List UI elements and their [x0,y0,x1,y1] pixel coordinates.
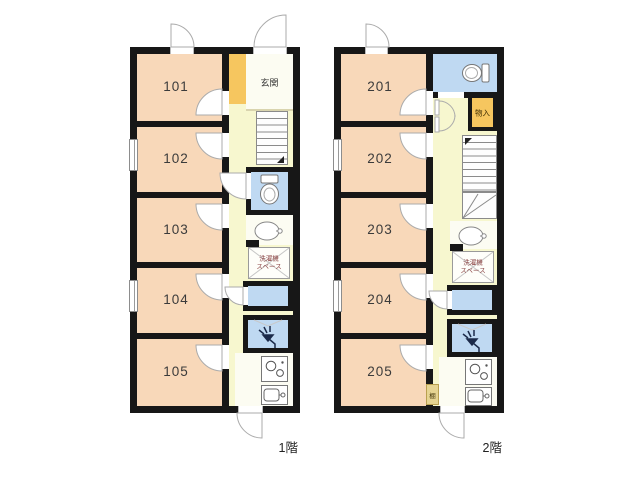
room-202-label: 202 [341,151,419,166]
stair-landing [462,192,497,219]
door-threshold [365,47,388,54]
stove-icon [465,359,492,385]
wall [334,47,504,54]
room-103-label: 103 [137,222,215,237]
room-101-label: 101 [137,79,215,94]
laundry-label-line1: 洗濯機 [463,260,483,267]
wall [246,240,259,247]
wall [341,121,433,127]
room-205-label: 205 [341,364,419,379]
wall [137,333,229,339]
laundry-label-line1: 洗濯機 [259,256,279,263]
doorway [426,91,433,115]
room-102-label: 102 [137,151,215,166]
doorway [222,345,229,369]
storage-closet: 物入 [468,94,497,131]
bath-room [243,281,293,311]
door-arc [220,173,247,200]
entrance-door-arc [253,15,287,48]
door-arc [225,287,244,306]
entrance-area: 玄関 [246,54,293,111]
door-arc [429,291,448,310]
doorway [426,345,433,369]
toilet-icon [258,173,282,207]
wall [341,192,433,198]
shelf-label: 棚 [427,390,438,400]
laundry-label-line2: スペース [460,267,485,274]
laundry-label-line2: スペース [256,263,281,270]
entrance-label: 玄関 [246,76,293,89]
room-203-label: 203 [341,222,419,237]
shower-icon [256,325,280,349]
floorplan-first-floor: 玄関 洗濯機 スペース [130,47,300,413]
sink-icon [465,387,492,406]
laundry-label: 洗濯機 スペース [249,256,289,271]
wall [137,121,229,127]
shelf-box: 棚 [426,384,439,405]
wall [341,262,433,268]
exterior-door-arc [170,23,195,48]
exterior-door-arc [439,413,465,439]
wall [497,47,504,413]
toilet-icon [461,60,491,86]
exterior-door-arc [237,413,263,439]
storage-label: 物入 [472,107,493,118]
door-threshold [440,406,465,413]
wall [130,47,137,413]
door-threshold [170,47,194,54]
sink-icon [261,385,288,405]
room-204-label: 204 [341,292,419,307]
exterior-door-arc [365,23,390,48]
doorway [438,92,464,98]
wall [334,406,504,413]
entrance-door-threshold [253,47,287,54]
stair-direction-arrow [276,155,285,164]
wall [450,244,463,251]
doorway [222,204,229,228]
floorplan-second-floor: 物入 洗濯機 スペース [334,47,504,413]
wall [293,47,300,413]
laundry-space: 洗濯機 スペース [452,251,494,283]
wall [130,406,300,413]
doorway [426,204,433,228]
laundry-label: 洗濯機 スペース [453,260,493,275]
second-floor-label: 2階 [483,437,502,456]
stair-direction-arrow [464,137,473,146]
wall [137,262,229,268]
laundry-space: 洗濯機 スペース [248,247,290,279]
shoe-cabinet [229,54,246,104]
stove-icon [261,356,288,382]
room-201-label: 201 [341,79,419,94]
bath-room [447,285,497,315]
wall [341,333,433,339]
first-floor-label: 1階 [279,437,298,456]
wall [137,192,229,198]
doorway [222,91,229,115]
doorway [222,133,229,157]
floorplan-canvas: 玄関 洗濯機 スペース [0,0,640,480]
shower-icon [460,329,484,353]
room-104-label: 104 [137,292,215,307]
wall [334,47,341,413]
doorway [426,133,433,157]
door-threshold [238,406,263,413]
room-105-label: 105 [137,364,215,379]
